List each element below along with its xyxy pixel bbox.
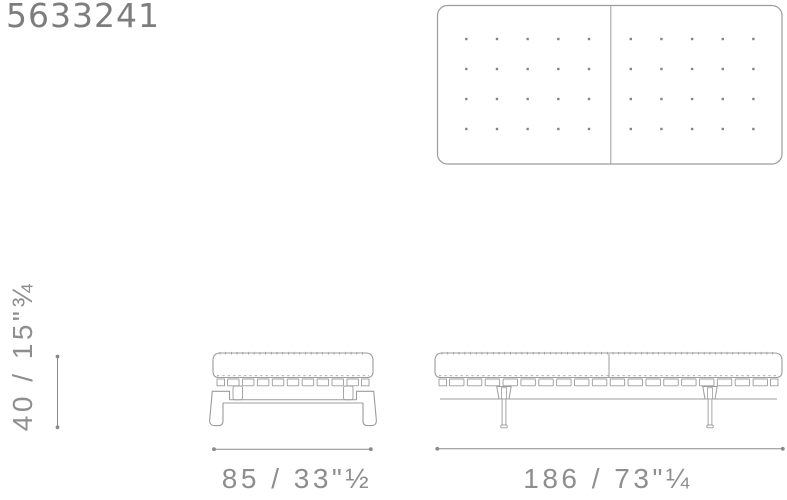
bench-side-view-drawing [435, 352, 782, 428]
technical-drawing [0, 0, 787, 500]
product-spec-sheet: 5633241 40 / 15"¾ 85 / 33"½ 186 / 73"¼ [0, 0, 787, 500]
ottoman-width-dimension-label: 85 / 33"½ [167, 463, 427, 495]
bench-width-dimension-label: 186 / 73"¼ [478, 463, 738, 495]
height-dimension-label: 40 / 15"¾ [8, 246, 38, 466]
top-view-drawing [438, 6, 783, 165]
ottoman-side-view-drawing [210, 352, 377, 426]
